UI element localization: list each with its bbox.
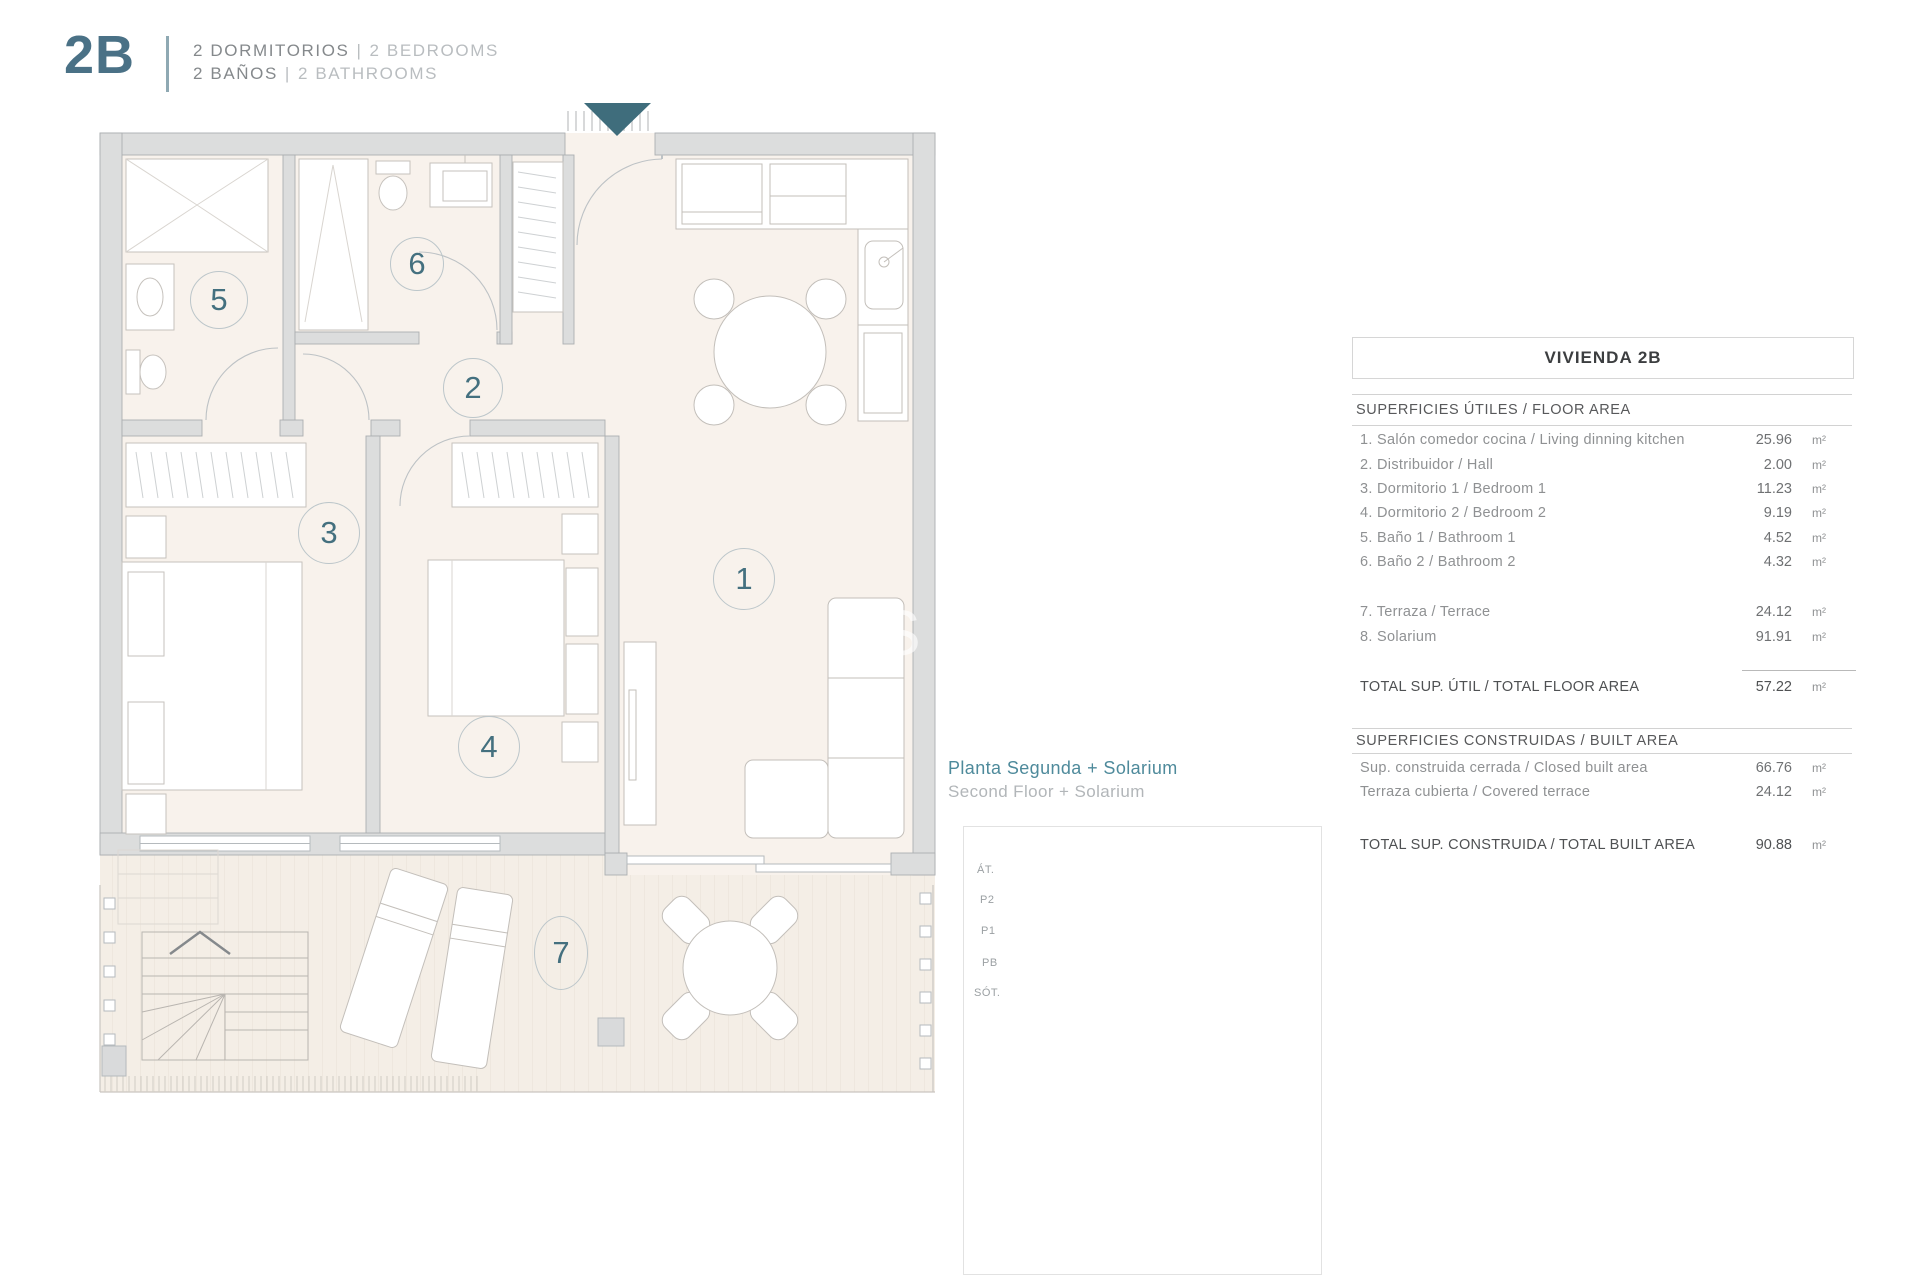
bedrooms-es: 2 DORMITORIOS bbox=[193, 41, 350, 60]
dining-table bbox=[694, 279, 846, 425]
location-diagram-box bbox=[963, 826, 1322, 1275]
floor-area-section-header: SUPERFICIES ÚTILES / FLOOR AREA bbox=[1352, 394, 1852, 426]
table-title: VIVIENDA 2B bbox=[1352, 337, 1854, 379]
row-label: 1. Salón comedor cocina / Living dinning… bbox=[1360, 428, 1685, 452]
row-unit: m² bbox=[1812, 756, 1826, 780]
total-value: 57.22 bbox=[1756, 675, 1792, 699]
row-value: 9.19 bbox=[1764, 501, 1792, 525]
row-unit: m² bbox=[1812, 625, 1826, 649]
bathrooms-es: 2 BAÑOS bbox=[193, 64, 278, 83]
elevation-label-pb: PB bbox=[982, 957, 998, 969]
table-row: 5. Baño 1 / Bathroom 1 4.52 m² bbox=[1352, 526, 1852, 550]
row-value: 24.12 bbox=[1756, 780, 1792, 804]
total-unit: m² bbox=[1812, 833, 1826, 857]
row-unit: m² bbox=[1812, 780, 1826, 804]
row-value: 66.76 bbox=[1756, 756, 1792, 780]
row-unit: m² bbox=[1812, 428, 1826, 452]
row-value: 4.32 bbox=[1764, 550, 1792, 574]
separator: | bbox=[357, 41, 363, 60]
table-row: Sup. construida cerrada / Closed built a… bbox=[1352, 756, 1852, 780]
floorplan-page: { "header": { "unit": "2B", "line1": { "… bbox=[0, 0, 1920, 1280]
built-total-row: TOTAL SUP. CONSTRUIDA / TOTAL BUILT AREA… bbox=[1352, 833, 1852, 857]
table-row: 8. Solarium 91.91 m² bbox=[1352, 625, 1852, 649]
row-label: 5. Baño 1 / Bathroom 1 bbox=[1360, 526, 1516, 550]
header-bathrooms-line: 2 BAÑOS|2 BATHROOMS bbox=[193, 64, 438, 84]
row-unit: m² bbox=[1812, 526, 1826, 550]
row-value: 91.91 bbox=[1756, 625, 1792, 649]
total-value: 90.88 bbox=[1756, 833, 1792, 857]
total-label: TOTAL SUP. ÚTIL / TOTAL FLOOR AREA bbox=[1360, 675, 1639, 699]
row-value: 2.00 bbox=[1764, 453, 1792, 477]
header-divider bbox=[166, 36, 169, 92]
table-row: Terraza cubierta / Covered terrace 24.12… bbox=[1352, 780, 1852, 804]
separator: | bbox=[285, 64, 291, 83]
row-unit: m² bbox=[1812, 477, 1826, 501]
entrance-marker bbox=[568, 103, 651, 136]
table-row: 6. Baño 2 / Bathroom 2 4.32 m² bbox=[1352, 550, 1852, 574]
row-unit: m² bbox=[1812, 453, 1826, 477]
total-divider-line bbox=[1742, 670, 1856, 671]
elevation-label-atico: ÁT. bbox=[977, 864, 994, 876]
row-value: 25.96 bbox=[1756, 428, 1792, 452]
row-unit: m² bbox=[1812, 501, 1826, 525]
table-row: 7. Terraza / Terrace 24.12 m² bbox=[1352, 600, 1852, 624]
built-area-section-header: SUPERFICIES CONSTRUIDAS / BUILT AREA bbox=[1352, 728, 1852, 754]
floor-caption-en: Second Floor + Solarium bbox=[948, 782, 1145, 802]
row-label: 4. Dormitorio 2 / Bedroom 2 bbox=[1360, 501, 1546, 525]
hall-closet bbox=[513, 162, 563, 312]
row-label: Terraza cubierta / Covered terrace bbox=[1360, 780, 1590, 804]
bedroom-1-furniture bbox=[122, 443, 306, 834]
table-row: 1. Salón comedor cocina / Living dinning… bbox=[1352, 428, 1852, 452]
row-label: 2. Distribuidor / Hall bbox=[1360, 453, 1493, 477]
table-row: 2. Distribuidor / Hall 2.00 m² bbox=[1352, 453, 1852, 477]
row-value: 24.12 bbox=[1756, 600, 1792, 624]
room-marker-bedroom-1: 3 bbox=[298, 502, 360, 564]
tv-unit bbox=[624, 642, 656, 825]
row-label: 6. Baño 2 / Bathroom 2 bbox=[1360, 550, 1516, 574]
row-value: 4.52 bbox=[1764, 526, 1792, 550]
watermark-letter: S bbox=[878, 596, 921, 670]
elevation-label-sot: SÓT. bbox=[974, 987, 1000, 999]
total-unit: m² bbox=[1812, 675, 1826, 699]
room-marker-bedroom-2: 4 bbox=[458, 716, 520, 778]
unit-code: 2B bbox=[64, 24, 135, 86]
row-value: 11.23 bbox=[1757, 477, 1792, 501]
room-marker-bathroom-1: 5 bbox=[190, 271, 248, 329]
room-marker-living: 1 bbox=[713, 548, 775, 610]
elevation-label-p1: P1 bbox=[981, 925, 995, 937]
room-marker-terrace: 7 bbox=[534, 916, 588, 990]
row-label: 7. Terraza / Terrace bbox=[1360, 600, 1490, 624]
row-label: 3. Dormitorio 1 / Bedroom 1 bbox=[1360, 477, 1546, 501]
bedroom-2-furniture bbox=[428, 443, 598, 762]
room-marker-bathroom-2: 6 bbox=[390, 237, 444, 291]
room-marker-hall: 2 bbox=[443, 358, 503, 418]
elevation-label-p2: P2 bbox=[980, 894, 994, 906]
row-label: Sup. construida cerrada / Closed built a… bbox=[1360, 756, 1648, 780]
total-label: TOTAL SUP. CONSTRUIDA / TOTAL BUILT AREA bbox=[1360, 833, 1695, 857]
header-bedrooms-line: 2 DORMITORIOS|2 BEDROOMS bbox=[193, 41, 499, 61]
table-row: 4. Dormitorio 2 / Bedroom 2 9.19 m² bbox=[1352, 501, 1852, 525]
row-label: 8. Solarium bbox=[1360, 625, 1437, 649]
bedrooms-en: 2 BEDROOMS bbox=[370, 41, 499, 60]
row-unit: m² bbox=[1812, 550, 1826, 574]
floor-total-row: TOTAL SUP. ÚTIL / TOTAL FLOOR AREA 57.22… bbox=[1352, 675, 1852, 699]
table-row: 3. Dormitorio 1 / Bedroom 1 11.23 m² bbox=[1352, 477, 1852, 501]
bathrooms-en: 2 BATHROOMS bbox=[298, 64, 438, 83]
floor-caption-es: Planta Segunda + Solarium bbox=[948, 758, 1178, 779]
row-unit: m² bbox=[1812, 600, 1826, 624]
